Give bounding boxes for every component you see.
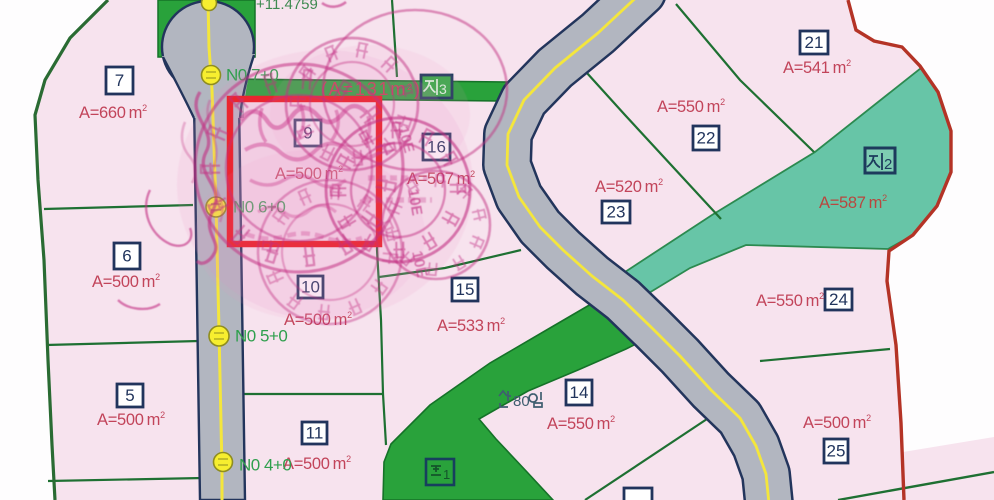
svg-text:22: 22 (697, 129, 716, 148)
svg-text:N0 5+0: N0 5+0 (235, 327, 287, 346)
svg-text:21: 21 (805, 33, 824, 52)
svg-text:A=500 m2: A=500 m2 (283, 454, 351, 473)
svg-text:14: 14 (570, 383, 589, 402)
svg-text:1: 1 (443, 467, 450, 482)
svg-text:A=550 m2: A=550 m2 (547, 414, 615, 433)
svg-text:A=541 m2: A=541 m2 (783, 58, 851, 77)
svg-text:80: 80 (513, 393, 530, 410)
svg-text:25: 25 (827, 442, 846, 461)
svg-text:A=500 m2: A=500 m2 (803, 413, 871, 432)
svg-text:15: 15 (456, 280, 475, 299)
svg-text:A=587 m2: A=587 m2 (819, 193, 887, 212)
svg-text:24: 24 (829, 290, 848, 309)
svg-text:A=500 m2: A=500 m2 (92, 272, 160, 291)
svg-text:A=500 m2: A=500 m2 (97, 410, 165, 429)
svg-text:A=660 m2: A=660 m2 (79, 103, 147, 122)
svg-text:A=533 m2: A=533 m2 (437, 316, 505, 335)
svg-text:A=520 m2: A=520 m2 (595, 177, 663, 196)
svg-text:+11.4759: +11.4759 (256, 0, 318, 13)
svg-text:N0 4+0: N0 4+0 (239, 456, 291, 475)
svg-text:A=550 m2: A=550 m2 (657, 97, 725, 116)
svg-text:7: 7 (115, 71, 124, 90)
svg-text:2: 2 (884, 156, 892, 173)
svg-text:A=550 m2: A=550 m2 (756, 291, 824, 310)
svg-text:11: 11 (306, 424, 324, 443)
svg-text:23: 23 (607, 203, 626, 222)
svg-text:6: 6 (122, 247, 131, 266)
svg-text:5: 5 (125, 386, 134, 405)
